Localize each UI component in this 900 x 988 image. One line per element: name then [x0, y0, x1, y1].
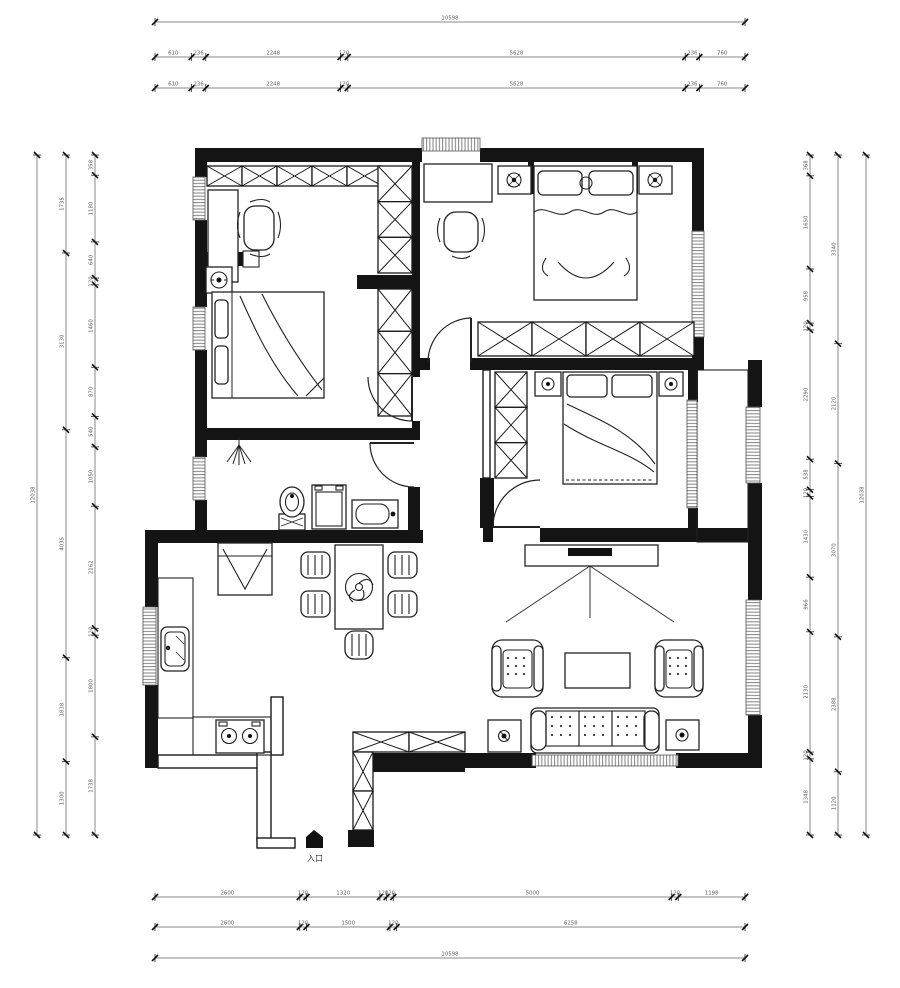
- dim-bottom-row2: 260012015001206258: [152, 921, 748, 932]
- shower-head-icon: [227, 437, 251, 465]
- dim-label: 120: [89, 626, 95, 637]
- chair-icon: [345, 631, 373, 659]
- dim-label: 2120: [832, 396, 838, 410]
- nightstand-lamp-icon: [498, 166, 531, 194]
- dim-label: 120: [298, 891, 309, 897]
- dim-label: 540: [89, 426, 95, 437]
- dim-top-row3: 61023622481205628236760: [152, 82, 748, 93]
- dim-label: 236: [687, 82, 698, 88]
- bed-icon: [212, 292, 324, 398]
- dim-label: 1430: [804, 529, 810, 543]
- dim-label: 1300: [60, 791, 66, 805]
- dim-label: 2162: [89, 560, 95, 574]
- shoe-cabinet-row: [353, 732, 465, 752]
- dim-label: 870: [89, 386, 95, 397]
- window-balcony-outer: [746, 407, 760, 483]
- dim-label: 1120: [832, 796, 838, 810]
- chair-icon: [388, 552, 417, 578]
- dim-label: 3340: [832, 242, 838, 256]
- dim-label: 120: [339, 82, 350, 88]
- stove-icon: [216, 720, 264, 753]
- dim-label: 236: [687, 51, 698, 57]
- dim-bottom-total: 10598: [152, 952, 748, 963]
- dim-label: 120: [804, 321, 810, 332]
- dim-label: 5628: [510, 82, 524, 88]
- dining-table-icon: [335, 545, 383, 629]
- side-table-lamp-icon: [488, 720, 521, 752]
- dim-label: 2130: [804, 684, 810, 698]
- entry-label: 入口: [307, 854, 323, 863]
- window-master-balcony: [687, 400, 697, 508]
- dim-label: 4035: [60, 537, 66, 551]
- tv-stand-icon: [506, 545, 674, 622]
- dim-label: 1650: [804, 215, 810, 229]
- wardrobe-bedroom2: [478, 322, 694, 356]
- shelf-icon: [424, 164, 492, 202]
- dim-label: 10598: [441, 16, 459, 22]
- dim-label: 2290: [804, 387, 810, 401]
- dim-label: 2388: [832, 697, 838, 711]
- dim-label: 2248: [266, 82, 280, 88]
- dim-label: 1320: [336, 891, 350, 897]
- floor-plan-canvas: 10598 61023622481205628236760 6102362248…: [0, 0, 900, 988]
- dim-label: 2600: [221, 891, 235, 897]
- toilet-icon: [279, 487, 305, 530]
- room-bathroom: [227, 437, 398, 530]
- dim-left-inner: 3581180640120146087054010502162120180017…: [89, 152, 100, 838]
- dim-label: 5628: [510, 51, 524, 57]
- dim-left-total: 12038: [31, 152, 42, 838]
- dim-label: 1460: [89, 319, 95, 333]
- room-master: [506, 372, 683, 622]
- fridge-icon: [218, 543, 272, 595]
- dim-label: 120: [670, 891, 681, 897]
- dim-label: 236: [194, 82, 205, 88]
- sofa-icon: [531, 708, 659, 753]
- dim-label: 760: [717, 51, 728, 57]
- dim-label: 10598: [441, 952, 459, 958]
- dim-label: 120: [388, 921, 399, 927]
- dim-label: 3130: [60, 334, 66, 348]
- door-bedroom2: [428, 318, 471, 362]
- dim-label: 6258: [564, 921, 578, 927]
- dim-label: 1838: [60, 702, 66, 716]
- dim-right-inner: 3681650958120229053812014309662130120134…: [804, 152, 815, 838]
- dim-bottom-row1: 2600120132012012050001201198: [152, 891, 748, 902]
- entry-marker: 入口: [306, 830, 323, 863]
- dim-label: 12038: [31, 486, 37, 504]
- wardrobe-master: [495, 372, 527, 478]
- sink-icon: [161, 627, 189, 671]
- dim-top-row2: 61023622481205628236760: [152, 51, 748, 62]
- dim-label: 1348: [804, 789, 810, 803]
- room-bedroom2: [424, 164, 672, 300]
- dim-label: 358: [89, 159, 95, 170]
- dim-right-total: 12038: [860, 152, 871, 838]
- dim-label: 538: [804, 469, 810, 480]
- nightstand-lamp-icon: [535, 372, 561, 396]
- chair-icon: [238, 200, 281, 257]
- window-bedroom-left: [193, 307, 205, 350]
- chair-icon: [388, 591, 417, 617]
- wardrobe-study-top: [207, 166, 382, 186]
- balcony-outline: [697, 370, 748, 542]
- coffee-table-icon: [565, 653, 630, 688]
- dim-right-middle: 33402120307023881120: [832, 152, 843, 838]
- dim-label: 3070: [832, 543, 838, 557]
- door-bathroom: [370, 443, 414, 487]
- dim-label: 120: [89, 276, 95, 287]
- dim-label: 1735: [60, 197, 66, 211]
- double-bed-icon: [563, 372, 657, 484]
- wardrobe-study-col2: [378, 289, 412, 416]
- window-study: [193, 177, 205, 220]
- nightstand-lamp-icon: [659, 372, 683, 396]
- divider-box: [243, 251, 259, 267]
- dim-label: 2248: [266, 51, 280, 57]
- window-sofa: [532, 755, 678, 766]
- dim-label: 1738: [89, 778, 95, 792]
- double-bed-icon: [534, 166, 637, 300]
- cabinet-lamp-icon: [206, 267, 232, 293]
- dim-label: 760: [717, 82, 728, 88]
- dim-label: 120: [298, 921, 309, 927]
- dim-label: 12038: [860, 486, 866, 504]
- chair-icon: [301, 552, 330, 578]
- dim-top-total: 10598: [152, 16, 748, 27]
- dim-label: 958: [804, 290, 810, 301]
- wardrobe-study-col1: [378, 166, 412, 273]
- dim-label: 368: [804, 160, 810, 171]
- door-master: [493, 480, 540, 527]
- dim-label: 1500: [341, 921, 355, 927]
- dim-label: 5000: [526, 891, 540, 897]
- dim-label: 120: [339, 51, 350, 57]
- dim-label: 2600: [221, 921, 235, 927]
- chair-icon: [301, 591, 330, 617]
- room-kitchen: [158, 543, 417, 755]
- dim-label: 1198: [705, 891, 719, 897]
- window-living: [746, 600, 760, 715]
- washbasin-icon: [352, 500, 398, 528]
- shoe-cabinet-col: [353, 752, 373, 830]
- dim-label: 610: [168, 51, 179, 57]
- nightstand-lamp-icon: [639, 166, 672, 194]
- dim-label: 640: [89, 254, 95, 265]
- dim-label: 1800: [89, 679, 95, 693]
- entry-arrow-icon: [306, 830, 323, 848]
- dim-label: 236: [194, 51, 205, 57]
- bay-window: [422, 138, 480, 151]
- dim-left-middle: 17353130403518381300: [60, 152, 71, 838]
- window-kitchen: [143, 607, 156, 685]
- armchair-icon: [492, 640, 543, 697]
- side-table-lamp-icon: [666, 720, 699, 750]
- dim-label: 610: [168, 82, 179, 88]
- dim-label: 1050: [89, 469, 95, 483]
- dim-label: 120: [804, 750, 810, 761]
- chair-icon: [438, 212, 485, 259]
- dim-label: 120: [385, 891, 396, 897]
- washing-machine-icon: [312, 485, 346, 529]
- dim-label: 1180: [89, 201, 95, 215]
- armchair-icon: [655, 640, 703, 697]
- room-living: [488, 640, 703, 753]
- dim-label: 966: [804, 599, 810, 610]
- dim-label: 120: [804, 487, 810, 498]
- room-study: [206, 190, 324, 398]
- window-bathroom: [193, 457, 205, 500]
- window-bedroom-right: [692, 231, 704, 337]
